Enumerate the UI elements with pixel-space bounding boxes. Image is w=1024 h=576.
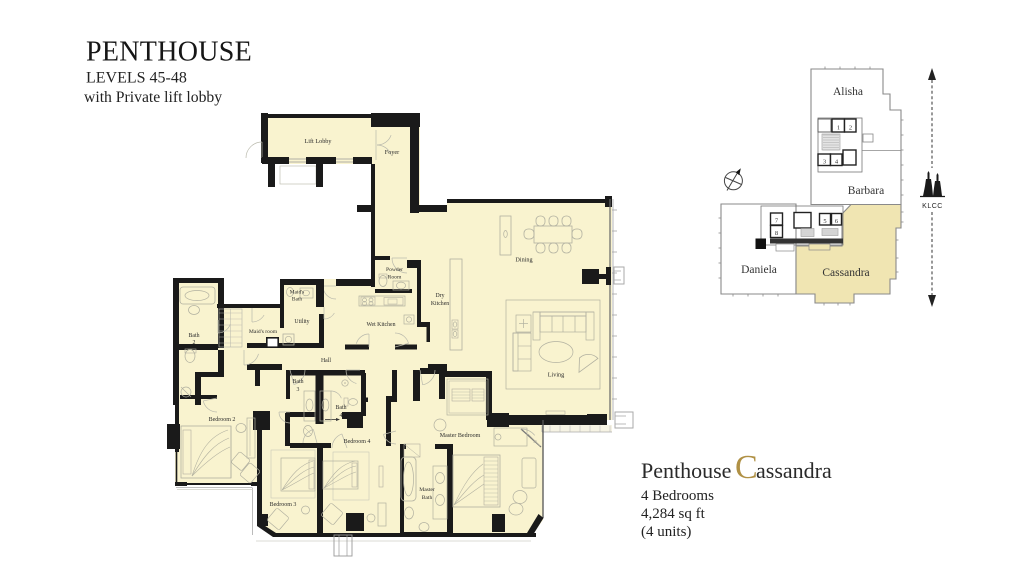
svg-text:Master Bedroom: Master Bedroom [440, 433, 481, 439]
svg-text:Master: Master [419, 487, 435, 493]
svg-text:Barbara: Barbara [848, 185, 884, 197]
svg-text:assandra: assandra [756, 458, 832, 483]
svg-text:Dry: Dry [435, 293, 444, 299]
svg-text:Dining: Dining [515, 257, 532, 264]
svg-text:Wet Kitchen: Wet Kitchen [367, 322, 396, 328]
svg-text:Kitchen: Kitchen [431, 301, 449, 307]
svg-text:C: C [735, 449, 758, 486]
svg-text:Penthouse: Penthouse [641, 458, 731, 483]
svg-text:Powder: Powder [386, 267, 403, 273]
svg-text:1: 1 [837, 125, 840, 132]
svg-text:Lift Lobby: Lift Lobby [305, 138, 333, 145]
svg-text:Bedroom 2: Bedroom 2 [209, 417, 236, 423]
svg-text:(4 units): (4 units) [641, 524, 691, 540]
svg-text:Maid's room: Maid's room [249, 329, 278, 335]
svg-text:4: 4 [340, 413, 343, 419]
svg-text:Living: Living [548, 372, 565, 379]
svg-text:KLCC: KLCC [922, 203, 943, 210]
svg-text:Bedroom 4: Bedroom 4 [344, 439, 371, 445]
svg-text:Bedroom 3: Bedroom 3 [270, 502, 297, 508]
svg-text:Room: Room [388, 275, 402, 281]
svg-text:Bath: Bath [189, 333, 200, 339]
svg-text:3: 3 [823, 159, 826, 166]
svg-text:45: 45 [533, 439, 537, 444]
svg-text:Maid's: Maid's [290, 290, 304, 296]
svg-text:Bath: Bath [336, 405, 347, 411]
svg-text:4 Bedrooms: 4 Bedrooms [641, 488, 714, 504]
svg-text:2: 2 [849, 125, 852, 132]
svg-text:Bath: Bath [293, 379, 304, 385]
svg-text:Utility: Utility [294, 319, 309, 325]
svg-text:8: 8 [775, 230, 778, 237]
svg-text:Daniela: Daniela [741, 264, 777, 276]
svg-text:PENTHOUSE: PENTHOUSE [86, 37, 252, 68]
svg-text:2: 2 [193, 340, 196, 346]
svg-text:Cassandra: Cassandra [822, 267, 869, 279]
svg-text:Alisha: Alisha [833, 86, 863, 98]
svg-text:4,284 sq ft: 4,284 sq ft [641, 506, 706, 522]
svg-text:Foyer: Foyer [385, 149, 399, 156]
svg-text:Hall: Hall [321, 358, 331, 364]
svg-text:with Private lift lobby: with Private lift lobby [84, 89, 222, 106]
svg-text:3: 3 [297, 387, 300, 393]
svg-text:Bath: Bath [292, 297, 302, 303]
svg-text:5: 5 [823, 218, 826, 225]
svg-text:Bath: Bath [422, 495, 433, 501]
svg-text:LEVELS 45-48: LEVELS 45-48 [86, 70, 187, 87]
